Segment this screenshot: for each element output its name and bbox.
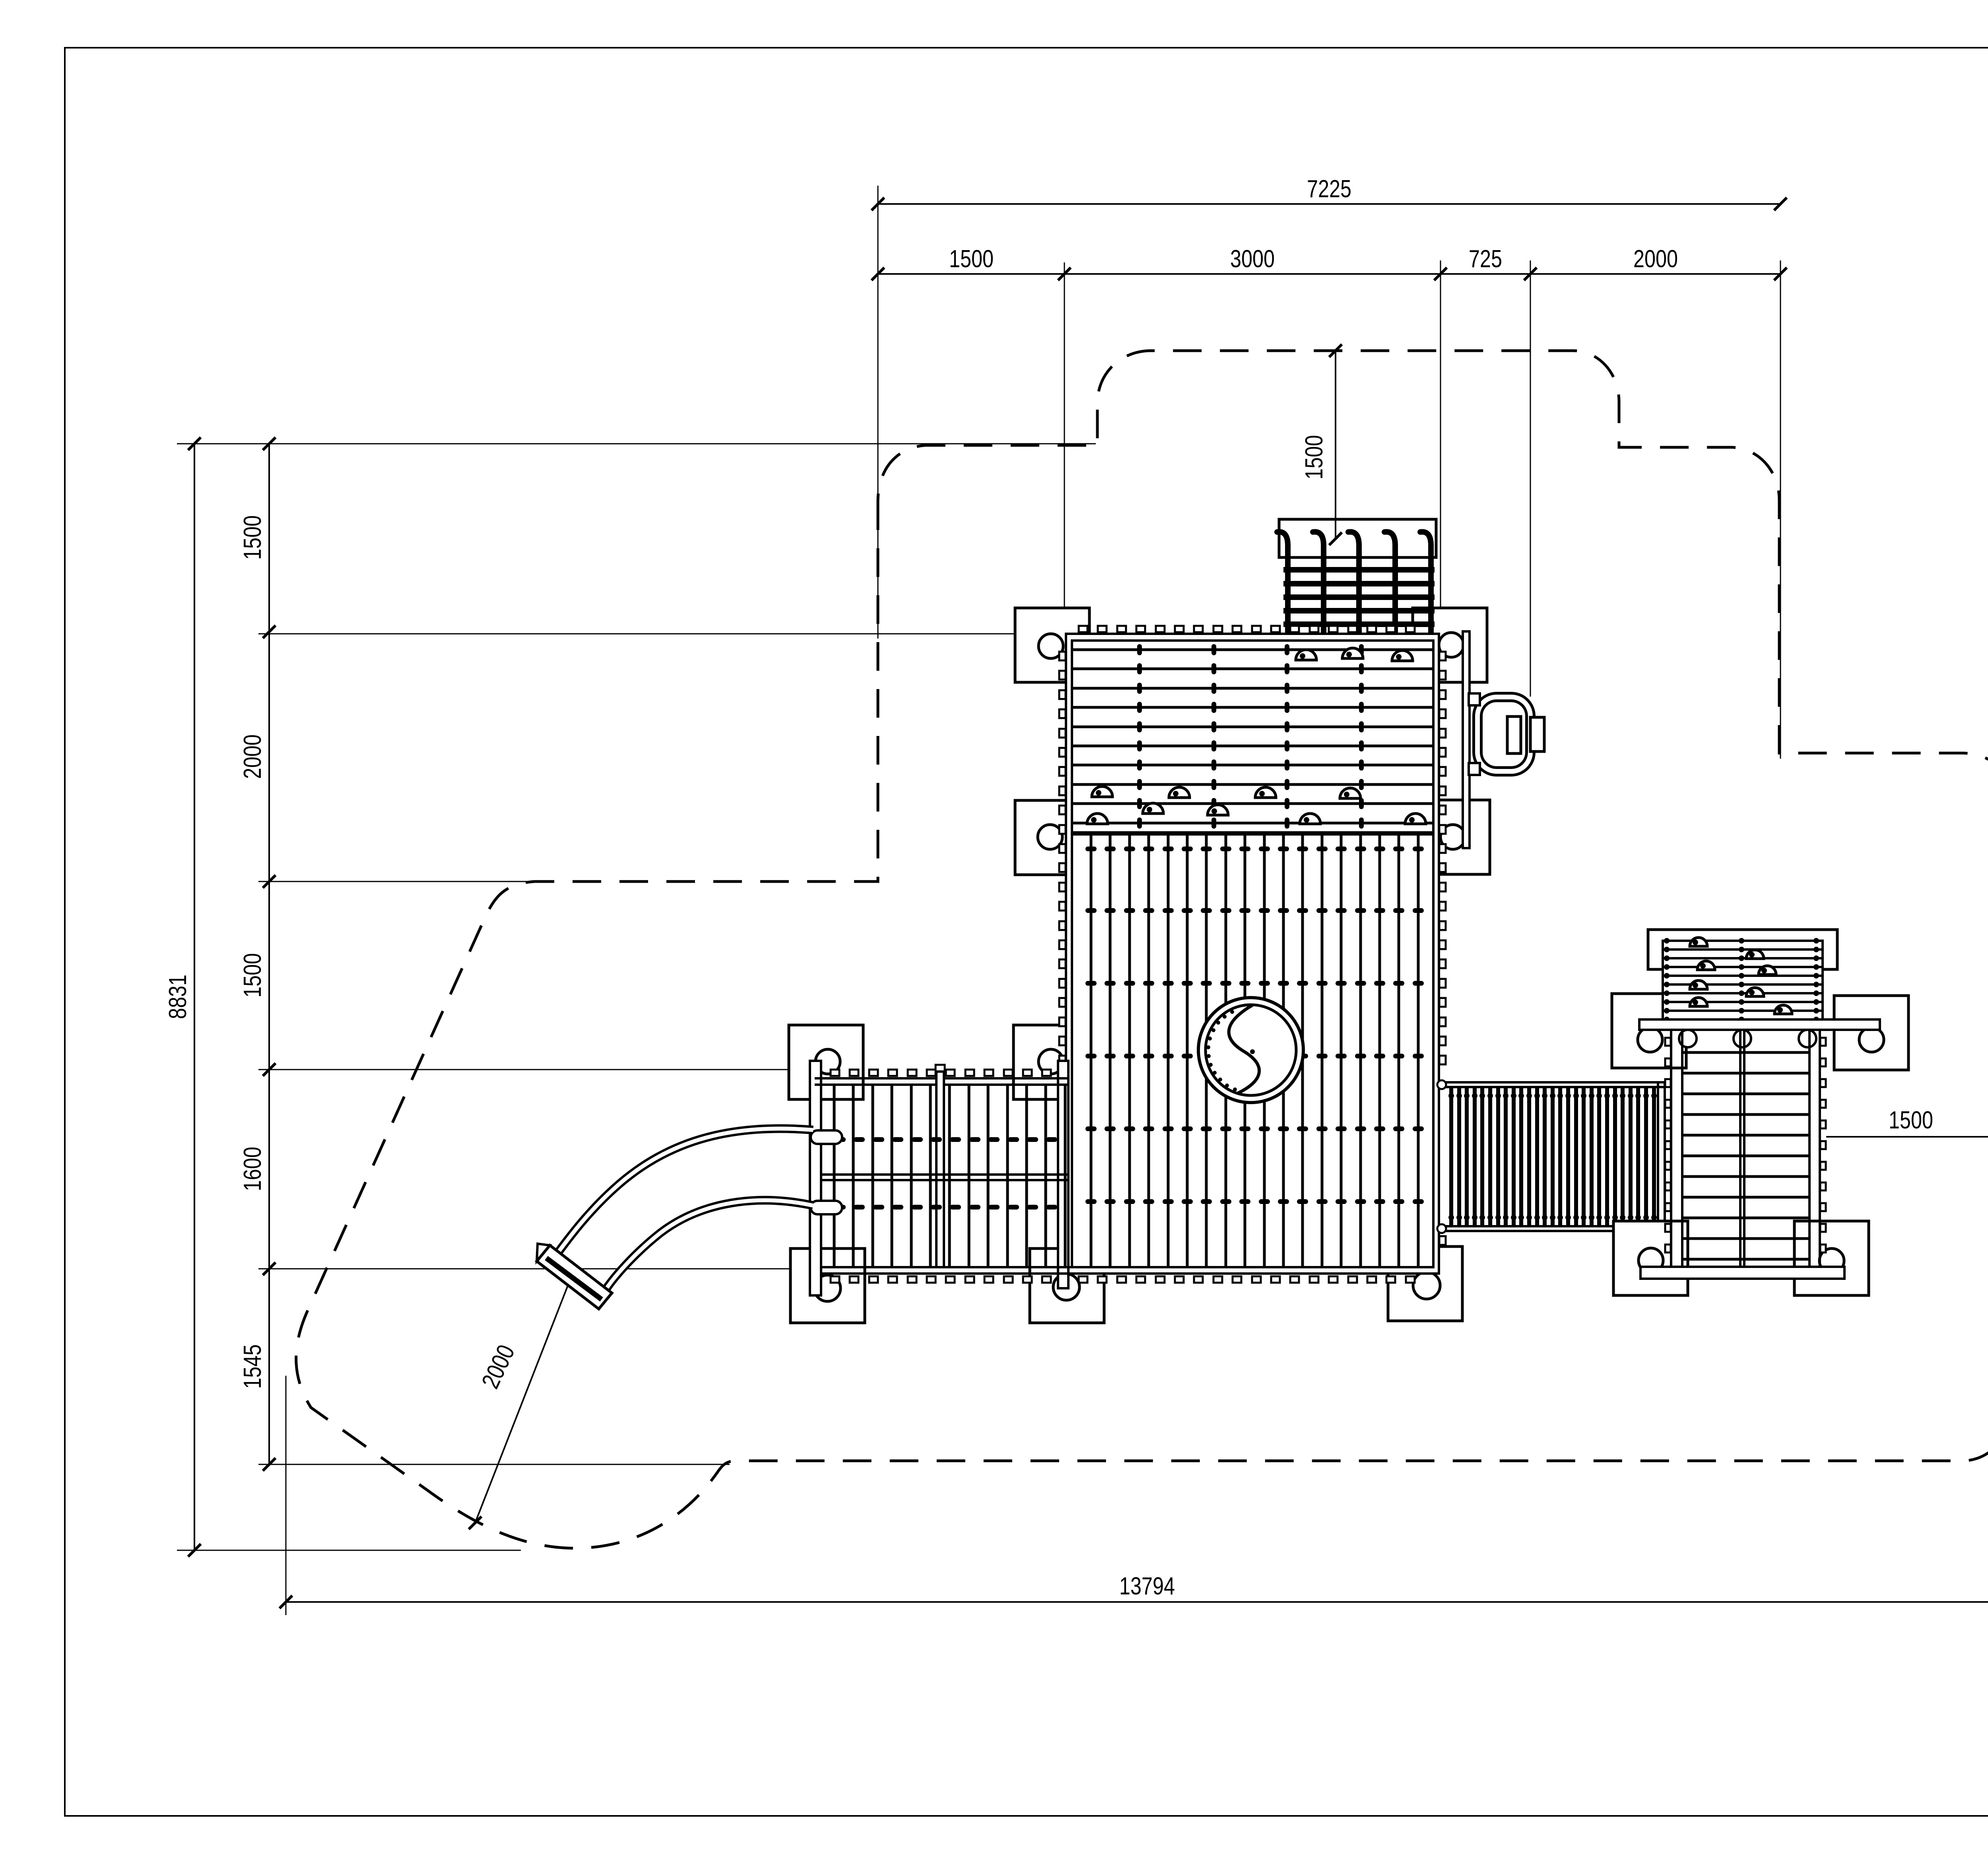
svg-text:13794: 13794 [1119,1573,1175,1600]
svg-text:1500: 1500 [1889,1107,1933,1134]
svg-text:725: 725 [1469,245,1502,273]
svg-text:2000: 2000 [1633,245,1678,273]
svg-text:1600: 1600 [239,1147,266,1191]
svg-text:2000: 2000 [239,734,266,779]
svg-text:1500: 1500 [1301,435,1328,480]
svg-text:3000: 3000 [1230,245,1275,273]
svg-text:1500: 1500 [239,515,266,560]
svg-text:1500: 1500 [239,953,266,998]
svg-text:1545: 1545 [239,1344,266,1389]
svg-text:1500: 1500 [949,245,994,273]
svg-text:8831: 8831 [164,975,192,1019]
svg-text:7225: 7225 [1307,175,1351,203]
